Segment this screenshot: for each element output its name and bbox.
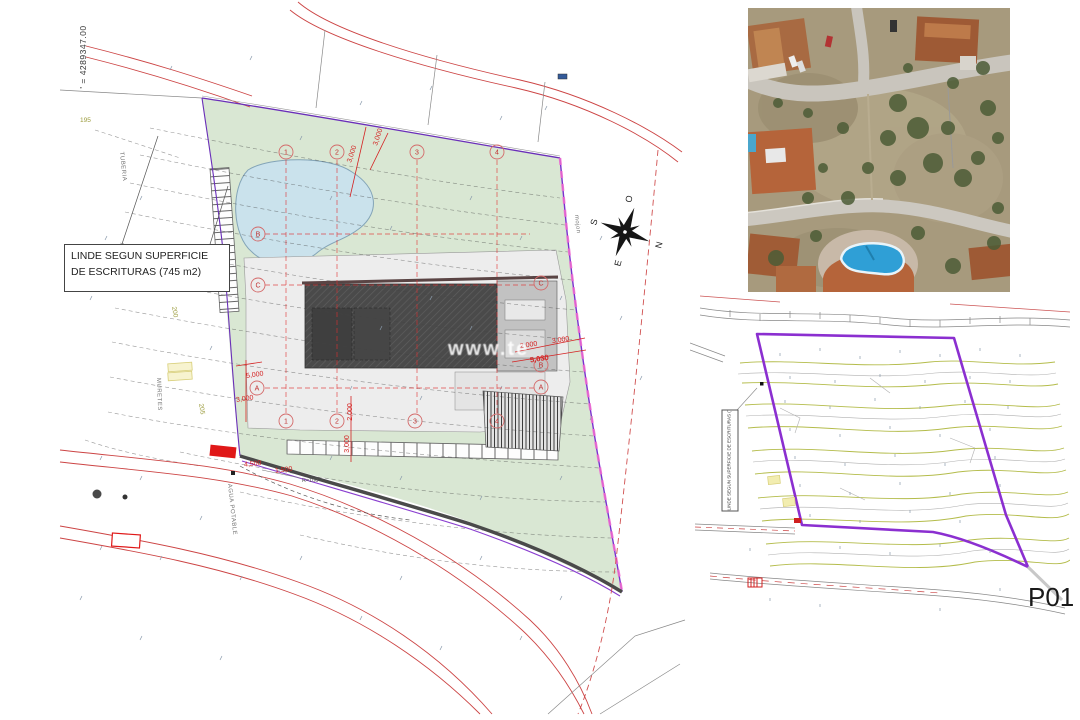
watermark: www.te xyxy=(448,338,638,361)
drawing-sheet: 1 2 3 4 1 2 3 4 B C A C B A 3,000 3,000 xyxy=(0,0,1080,720)
dim-road-b: 1,500 xyxy=(275,466,293,475)
grid-bubble-A2: A xyxy=(539,385,544,392)
coordinate-label: ' = 4289347.00 xyxy=(78,25,88,88)
mojon-label: mojon xyxy=(573,215,581,234)
contour-label-205: 205 xyxy=(197,403,206,415)
detail-note-box: LINDE SEGUN SUPERFICIE DE ESCRITURAS (74… xyxy=(722,410,739,512)
compass-west: O xyxy=(623,194,634,203)
detail-top-road xyxy=(690,296,1070,362)
grid-bubble-B: B xyxy=(256,232,261,239)
radius-label: R=100 xyxy=(302,478,318,484)
dim-bottom-b: 3,000 xyxy=(344,435,351,453)
grid-bubble-3b: 3 xyxy=(413,419,417,426)
manhole-dot xyxy=(93,490,102,499)
note-box: LINDE SEGUN SUPERFICIE DE ESCRITURAS (74… xyxy=(64,244,230,292)
note-line-2: DE ESCRITURAS (745 m2) xyxy=(71,264,223,280)
compass-north: N xyxy=(653,241,664,250)
grid-bubble-C: C xyxy=(255,283,260,290)
dim-bottom-a: 2,000 xyxy=(347,403,354,421)
detail-survey-plan xyxy=(690,288,1070,628)
tuberia-label: TUBERIA xyxy=(118,152,127,182)
small-dot xyxy=(123,495,128,500)
road-marker xyxy=(112,533,141,548)
muretes-label: MURETES xyxy=(155,378,162,411)
aerial-photo xyxy=(748,8,1010,292)
agua-potable-label: AGUA POTABLE xyxy=(226,484,237,536)
grid-bubble-B2: B xyxy=(539,363,544,370)
contour-label-195: 195 xyxy=(80,117,91,124)
detail-survey-station xyxy=(760,382,764,386)
grid-bubble-2b: 2 xyxy=(335,419,339,426)
note-line-1: LINDE SEGUN SUPERFICIE xyxy=(71,248,223,264)
detail-contours-olive xyxy=(740,361,1070,568)
dim-road-a: 4,500 xyxy=(244,460,262,469)
grid-bubble-1b: 1 xyxy=(284,419,288,426)
grid-bubble-A: A xyxy=(255,386,260,393)
utility-marker xyxy=(558,74,567,79)
grid-bubble-3: 3 xyxy=(415,150,419,157)
sheet-number: P01 xyxy=(1028,582,1074,613)
entry-marker xyxy=(209,445,236,459)
grid-bubble-4: 4 xyxy=(495,150,499,157)
grid-bubble-1: 1 xyxy=(284,150,288,157)
grid-bubble-C2: C xyxy=(538,281,543,288)
detail-bottom-roads xyxy=(695,524,1065,614)
contour-label-200: 200 xyxy=(170,306,179,318)
grid-bubble-2: 2 xyxy=(335,150,339,157)
compass-east: E xyxy=(612,259,623,267)
detail-plot-boundary xyxy=(757,334,1028,567)
compass-south: S xyxy=(588,218,599,226)
grid-bubble-4b: 4 xyxy=(495,419,499,426)
